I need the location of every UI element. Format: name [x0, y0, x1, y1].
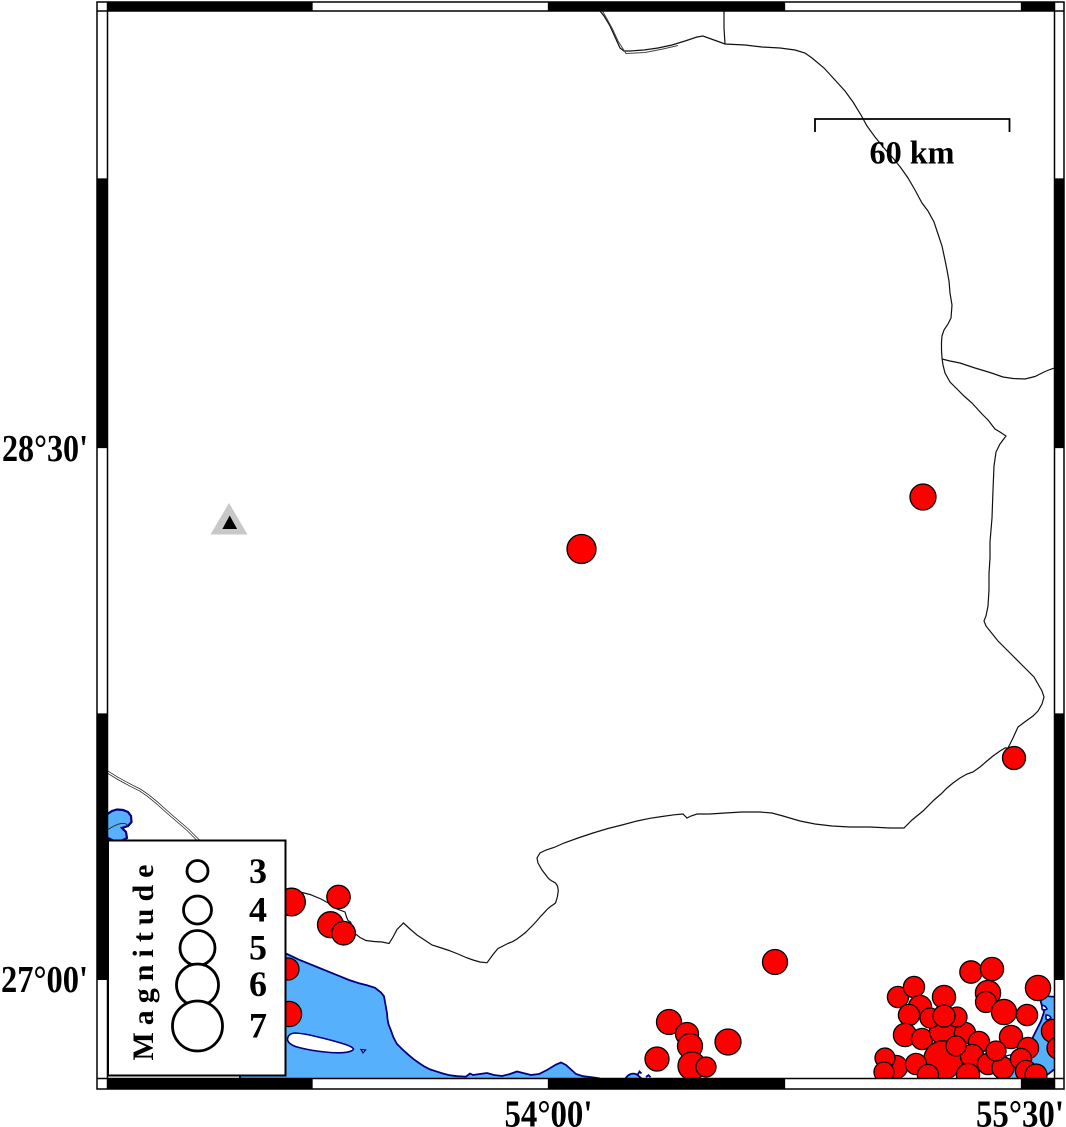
- svg-text:5: 5: [249, 928, 267, 968]
- svg-text:55°30': 55°30': [976, 1094, 1064, 1127]
- svg-text:54°00': 54°00': [505, 1094, 593, 1127]
- svg-text:27°00': 27°00': [1, 959, 88, 1001]
- svg-text:6: 6: [249, 964, 267, 1004]
- svg-text:7: 7: [249, 1006, 267, 1046]
- svg-text:28°30': 28°30': [2, 428, 88, 470]
- svg-text:60 km: 60 km: [870, 136, 955, 172]
- svg-text:Magnitude: Magnitude: [127, 857, 160, 1060]
- svg-text:3: 3: [249, 851, 267, 891]
- svg-text:4: 4: [249, 890, 267, 930]
